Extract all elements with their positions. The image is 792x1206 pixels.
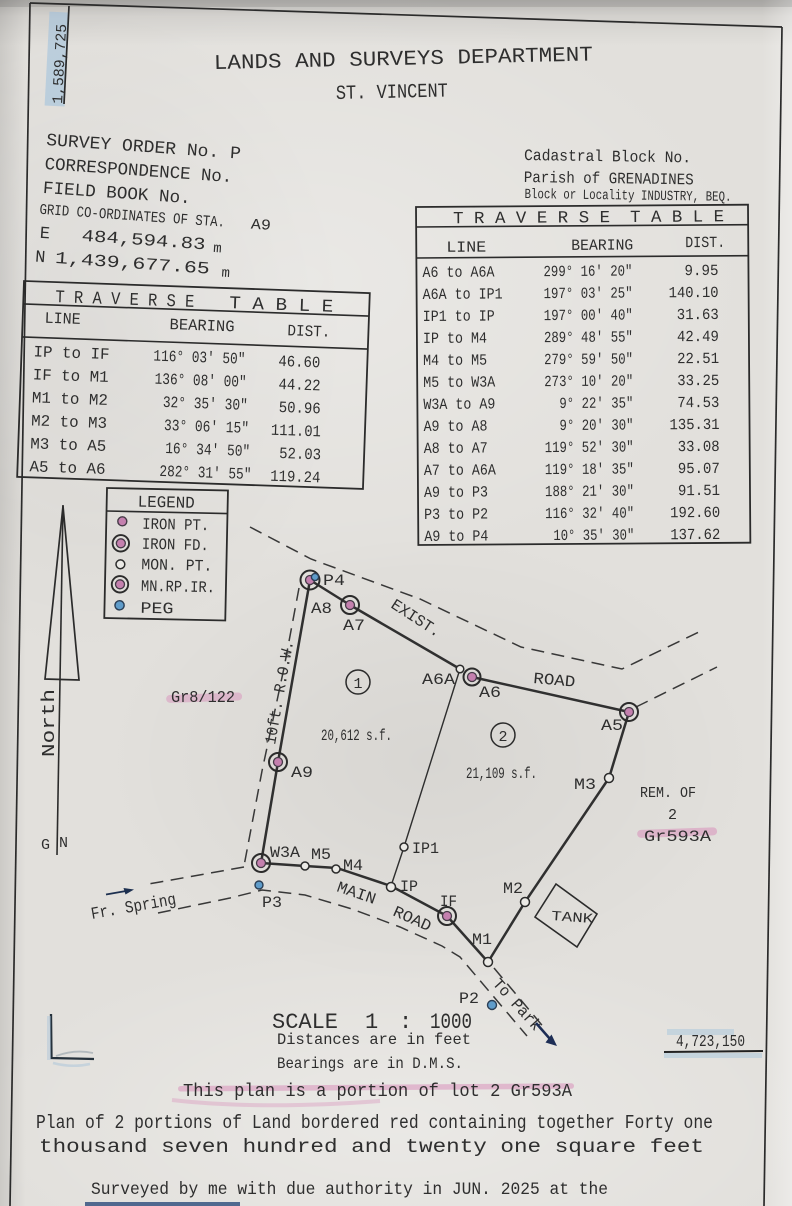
svg-text:P2: P2	[459, 990, 479, 1008]
svg-text:M1: M1	[472, 931, 492, 949]
svg-text:50.96: 50.96	[278, 399, 321, 418]
svg-text:Cadastral Block No.: Cadastral Block No.	[524, 147, 691, 167]
svg-text:9° 20′ 30″: 9° 20′ 30″	[559, 416, 633, 435]
svg-text:16° 34′ 50″: 16° 34′ 50″	[165, 440, 251, 461]
svg-text:A7: A7	[343, 617, 365, 635]
svg-text:P3: P3	[262, 894, 282, 912]
svg-text:E: E	[39, 225, 51, 245]
svg-text:DIST.: DIST.	[685, 234, 725, 252]
svg-text:Plan of 2 portions of Land bor: Plan of 2 portions of Land bordered red …	[36, 1112, 713, 1134]
svg-text:197° 00′ 40″: 197° 00′ 40″	[544, 306, 633, 325]
svg-text:A8: A8	[311, 600, 332, 618]
svg-text:119° 52′ 30″: 119° 52′ 30″	[545, 438, 634, 457]
svg-text:LEGEND: LEGEND	[138, 493, 195, 513]
svg-text:188° 21′ 30″: 188° 21′ 30″	[545, 482, 634, 501]
svg-text:A6A: A6A	[422, 671, 455, 689]
svg-text:IRON PT.: IRON PT.	[142, 516, 209, 535]
svg-text:119.24: 119.24	[270, 468, 321, 488]
svg-text:9° 22′ 35″: 9° 22′ 35″	[559, 394, 633, 413]
svg-text:IP1 to IP: IP1 to IP	[423, 307, 495, 326]
svg-text:Distances are in feet: Distances are in feet	[277, 1031, 471, 1049]
svg-text:T R A V E R S E: T R A V E R S E	[453, 209, 610, 229]
svg-text:22.51: 22.51	[677, 350, 719, 368]
svg-text:9.95: 9.95	[684, 262, 718, 280]
svg-text:This plan is a portion of lot: This plan is a portion of lot 2 Gr593A	[183, 1081, 573, 1102]
svg-text:Surveyed by me with due author: Surveyed by me with due authority in JUN…	[91, 1180, 608, 1200]
svg-text:IF to M1: IF to M1	[32, 366, 109, 387]
svg-text:2: 2	[668, 807, 677, 824]
svg-text:P3 to P2: P3 to P2	[424, 506, 488, 524]
svg-text:IRON FD.: IRON FD.	[142, 536, 209, 555]
svg-text:Gr8/122: Gr8/122	[171, 689, 235, 708]
svg-text:ST. VINCENT: ST. VINCENT	[336, 80, 448, 106]
svg-text:A6: A6	[479, 684, 501, 702]
svg-text:M5: M5	[311, 846, 331, 864]
svg-text:LINE: LINE	[44, 310, 81, 329]
svg-text:A9 to A8: A9 to A8	[423, 418, 487, 436]
svg-text:M2: M2	[503, 880, 523, 898]
svg-text:MON. PT.: MON. PT.	[141, 556, 212, 575]
svg-text:m: m	[213, 241, 223, 258]
svg-text:4,723,150: 4,723,150	[676, 1033, 745, 1052]
svg-text:2: 2	[498, 729, 507, 746]
svg-text:46.60: 46.60	[278, 353, 321, 372]
svg-text:M3 to A5: M3 to A5	[30, 435, 107, 456]
svg-text:A9 to P3: A9 to P3	[424, 484, 488, 502]
svg-text:T A B L E: T A B L E	[229, 294, 334, 318]
svg-text:136° 08′ 00″: 136° 08′ 00″	[154, 371, 247, 392]
svg-text:Block or Locality INDUSTRY, BE: Block or Locality INDUSTRY, BEQ.	[524, 187, 731, 206]
svg-text:135.31: 135.31	[669, 416, 719, 434]
svg-text:33° 06′ 15″: 33° 06′ 15″	[164, 417, 250, 438]
svg-text:289° 48′ 55″: 289° 48′ 55″	[544, 328, 633, 347]
svg-text:A6 to A6A: A6 to A6A	[422, 263, 495, 282]
svg-text:P4: P4	[323, 572, 345, 590]
svg-text:A6A to IP1: A6A to IP1	[423, 285, 503, 304]
svg-text:G: G	[41, 837, 50, 854]
svg-text:192.60: 192.60	[670, 504, 720, 522]
svg-text:42.49: 42.49	[677, 328, 719, 346]
svg-text:116° 32′ 40″: 116° 32′ 40″	[545, 504, 634, 523]
svg-text:PEG: PEG	[140, 600, 173, 619]
svg-text:A7 to A6A: A7 to A6A	[424, 461, 497, 480]
svg-text:A9: A9	[250, 217, 271, 235]
svg-text:91.51: 91.51	[678, 482, 720, 500]
svg-text:A9: A9	[291, 764, 313, 782]
svg-text:299° 16′ 20″: 299° 16′ 20″	[543, 262, 632, 281]
svg-text:M4: M4	[343, 857, 363, 875]
svg-text:74.53: 74.53	[677, 394, 719, 412]
svg-text:T A B L E: T A B L E	[630, 208, 724, 228]
svg-text:A8 to A7: A8 to A7	[424, 440, 488, 458]
svg-text:282° 31′ 55″: 282° 31′ 55″	[159, 463, 252, 484]
svg-text:111.01: 111.01	[271, 422, 322, 442]
svg-text:Bearings are in D.M.S.: Bearings are in D.M.S.	[277, 1055, 463, 1073]
svg-text:Gr593A: Gr593A	[644, 828, 711, 846]
svg-text:273° 10′ 20″: 273° 10′ 20″	[544, 372, 633, 391]
svg-text:N: N	[59, 835, 68, 852]
svg-text:279° 59′ 50″: 279° 59′ 50″	[544, 350, 633, 369]
svg-text:20,612 s.f.: 20,612 s.f.	[321, 727, 392, 745]
svg-text:119° 18′ 35″: 119° 18′ 35″	[545, 460, 634, 479]
svg-text:95.07: 95.07	[678, 460, 720, 478]
svg-text:21,109 s.f.: 21,109 s.f.	[466, 765, 537, 783]
svg-text:140.10: 140.10	[669, 284, 719, 302]
svg-text:IP1: IP1	[412, 840, 439, 858]
svg-text:197° 03′ 25″: 197° 03′ 25″	[544, 284, 633, 303]
svg-text:M1 to M2: M1 to M2	[32, 389, 109, 410]
svg-text:33.25: 33.25	[677, 372, 719, 390]
svg-text:116° 03′ 50″: 116° 03′ 50″	[153, 348, 246, 369]
svg-text:M2 to M3: M2 to M3	[31, 412, 108, 433]
svg-text:M4 to M5: M4 to M5	[423, 352, 487, 370]
svg-text:IP to IF: IP to IF	[33, 343, 110, 364]
svg-text:M5 to W3A: M5 to W3A	[423, 373, 496, 392]
svg-text:BEARING: BEARING	[571, 236, 633, 254]
svg-text:A9 to P4: A9 to P4	[424, 528, 488, 546]
svg-text:W3A to A9: W3A to A9	[423, 395, 495, 414]
svg-text:44.22: 44.22	[278, 376, 321, 395]
svg-text:137.62: 137.62	[670, 526, 720, 544]
svg-text:Parish of GRENADINES: Parish of GRENADINES	[524, 169, 694, 189]
svg-text:A5: A5	[601, 717, 623, 735]
svg-text:33.08: 33.08	[678, 438, 720, 456]
svg-text:North: North	[40, 689, 60, 757]
svg-text:32° 35′ 30″: 32° 35′ 30″	[163, 394, 249, 415]
svg-text:52.03: 52.03	[279, 445, 322, 464]
svg-text:10° 35′ 30″: 10° 35′ 30″	[553, 526, 634, 545]
svg-text:MN.RP.IR.: MN.RP.IR.	[141, 578, 215, 598]
svg-text:31.63: 31.63	[677, 306, 719, 324]
svg-text:1: 1	[353, 676, 362, 693]
svg-text:A5 to A6: A5 to A6	[29, 458, 106, 479]
svg-text:BEARING: BEARING	[169, 316, 235, 336]
svg-text:thousand seven hundred and twe: thousand seven hundred and twenty one sq…	[39, 1136, 704, 1158]
svg-text:W3A: W3A	[270, 844, 300, 862]
svg-text:IP to M4: IP to M4	[423, 330, 487, 348]
svg-text:DIST.: DIST.	[287, 322, 331, 341]
svg-text:M3: M3	[574, 776, 596, 794]
svg-text:IP: IP	[400, 878, 418, 896]
svg-text:IF: IF	[440, 893, 457, 911]
svg-text:ROAD: ROAD	[533, 670, 576, 692]
svg-text:LINE: LINE	[446, 239, 486, 257]
svg-text:m: m	[221, 266, 231, 283]
svg-text:REM. OF: REM. OF	[640, 785, 696, 802]
svg-text:TANK: TANK	[551, 909, 595, 928]
svg-text:N: N	[34, 249, 46, 269]
